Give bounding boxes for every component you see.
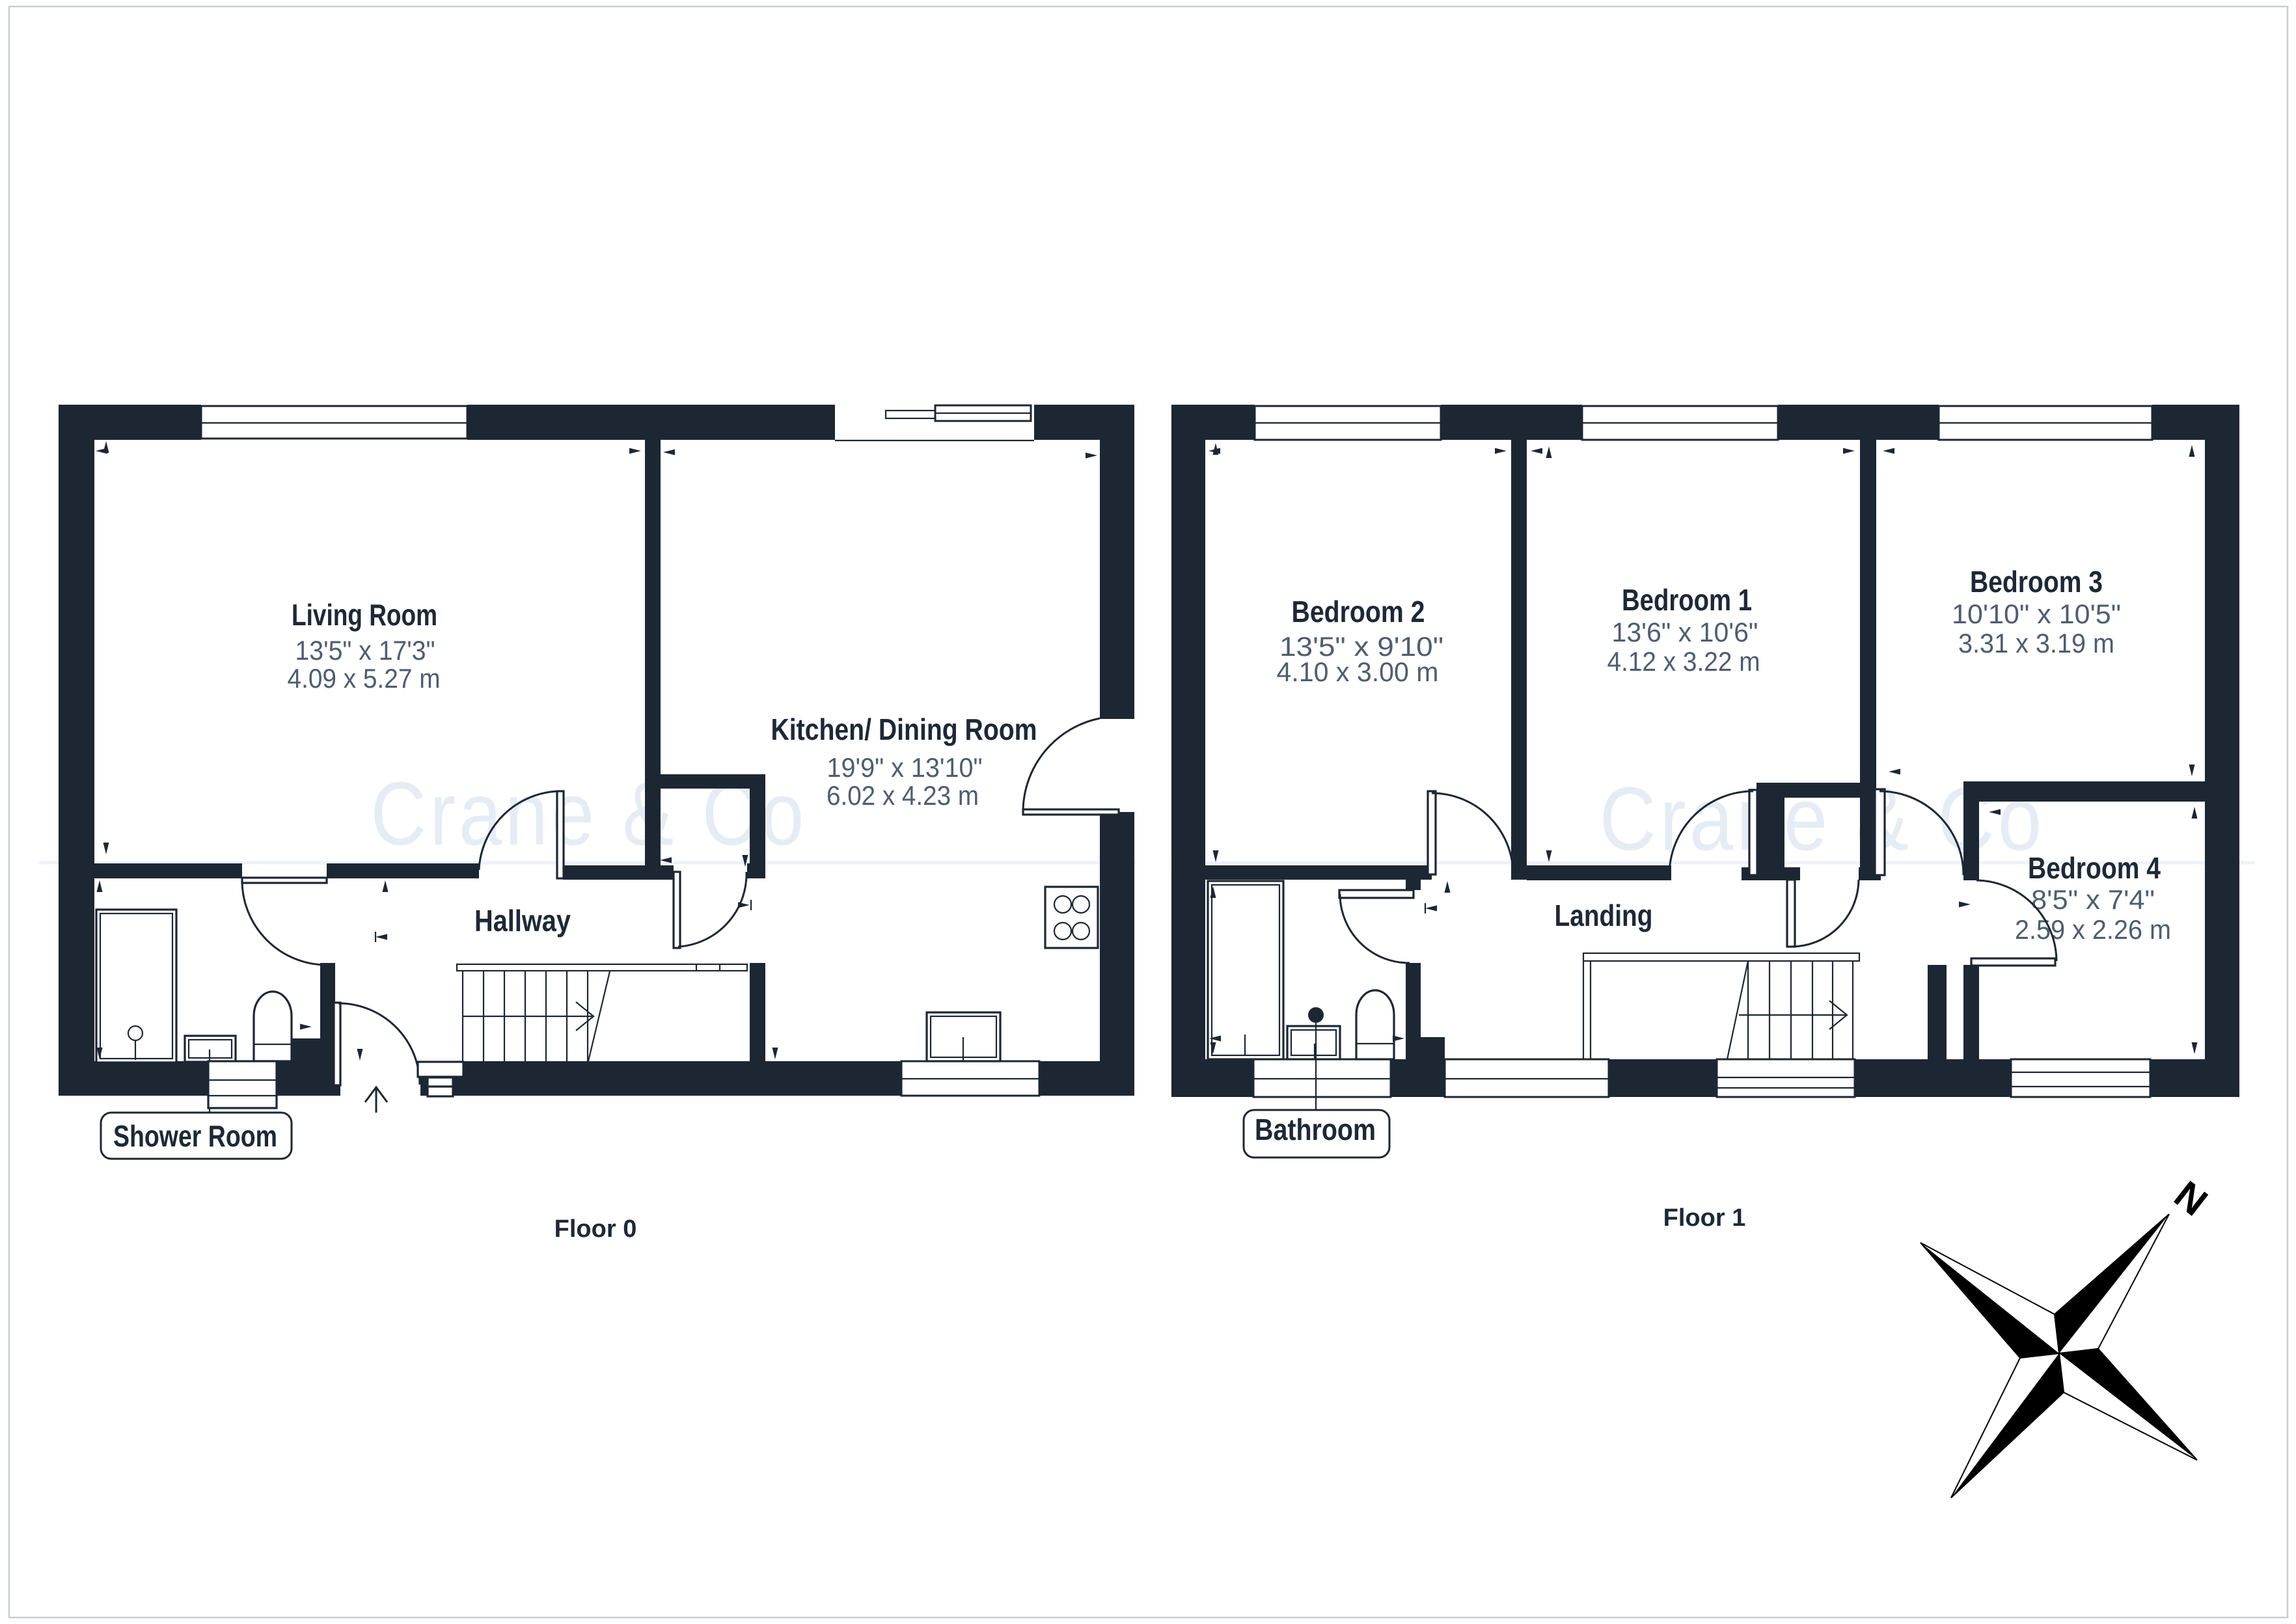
svg-text:Landing: Landing (1555, 899, 1653, 932)
svg-text:2.59 x 2.26 m: 2.59 x 2.26 m (2015, 914, 2171, 945)
svg-text:19'9" x 13'10": 19'9" x 13'10" (827, 752, 983, 783)
svg-text:13'6" x 10'6": 13'6" x 10'6" (1612, 617, 1758, 647)
svg-text:Bedroom 3: Bedroom 3 (1970, 565, 2103, 599)
svg-text:4.10 x 3.00 m: 4.10 x 3.00 m (1277, 656, 1439, 687)
svg-text:Bedroom 4: Bedroom 4 (2028, 851, 2161, 885)
svg-text:10'10" x 10'5": 10'10" x 10'5" (1952, 599, 2121, 629)
svg-text:Bathroom: Bathroom (1255, 1113, 1376, 1146)
svg-text:4.12 x 3.22 m: 4.12 x 3.22 m (1607, 646, 1760, 677)
svg-text:8'5" x 7'4": 8'5" x 7'4" (2031, 884, 2155, 915)
svg-text:3.31 x 3.19 m: 3.31 x 3.19 m (1958, 628, 2114, 658)
svg-text:6.02 x 4.23 m: 6.02 x 4.23 m (827, 780, 979, 811)
svg-text:Bedroom 2: Bedroom 2 (1292, 595, 1425, 629)
svg-text:Hallway: Hallway (474, 904, 571, 938)
svg-text:Kitchen/ Dining Room: Kitchen/ Dining Room (771, 712, 1037, 746)
svg-text:Shower Room: Shower Room (113, 1119, 277, 1153)
svg-text:Floor 1: Floor 1 (1663, 1204, 1746, 1232)
svg-text:Bedroom 1: Bedroom 1 (1622, 583, 1752, 617)
svg-text:13'5" x 17'3": 13'5" x 17'3" (295, 635, 435, 666)
svg-text:Living Room: Living Room (292, 598, 437, 632)
svg-text:Floor 0: Floor 0 (554, 1215, 637, 1243)
svg-text:4.09 x 5.27 m: 4.09 x 5.27 m (288, 663, 441, 694)
